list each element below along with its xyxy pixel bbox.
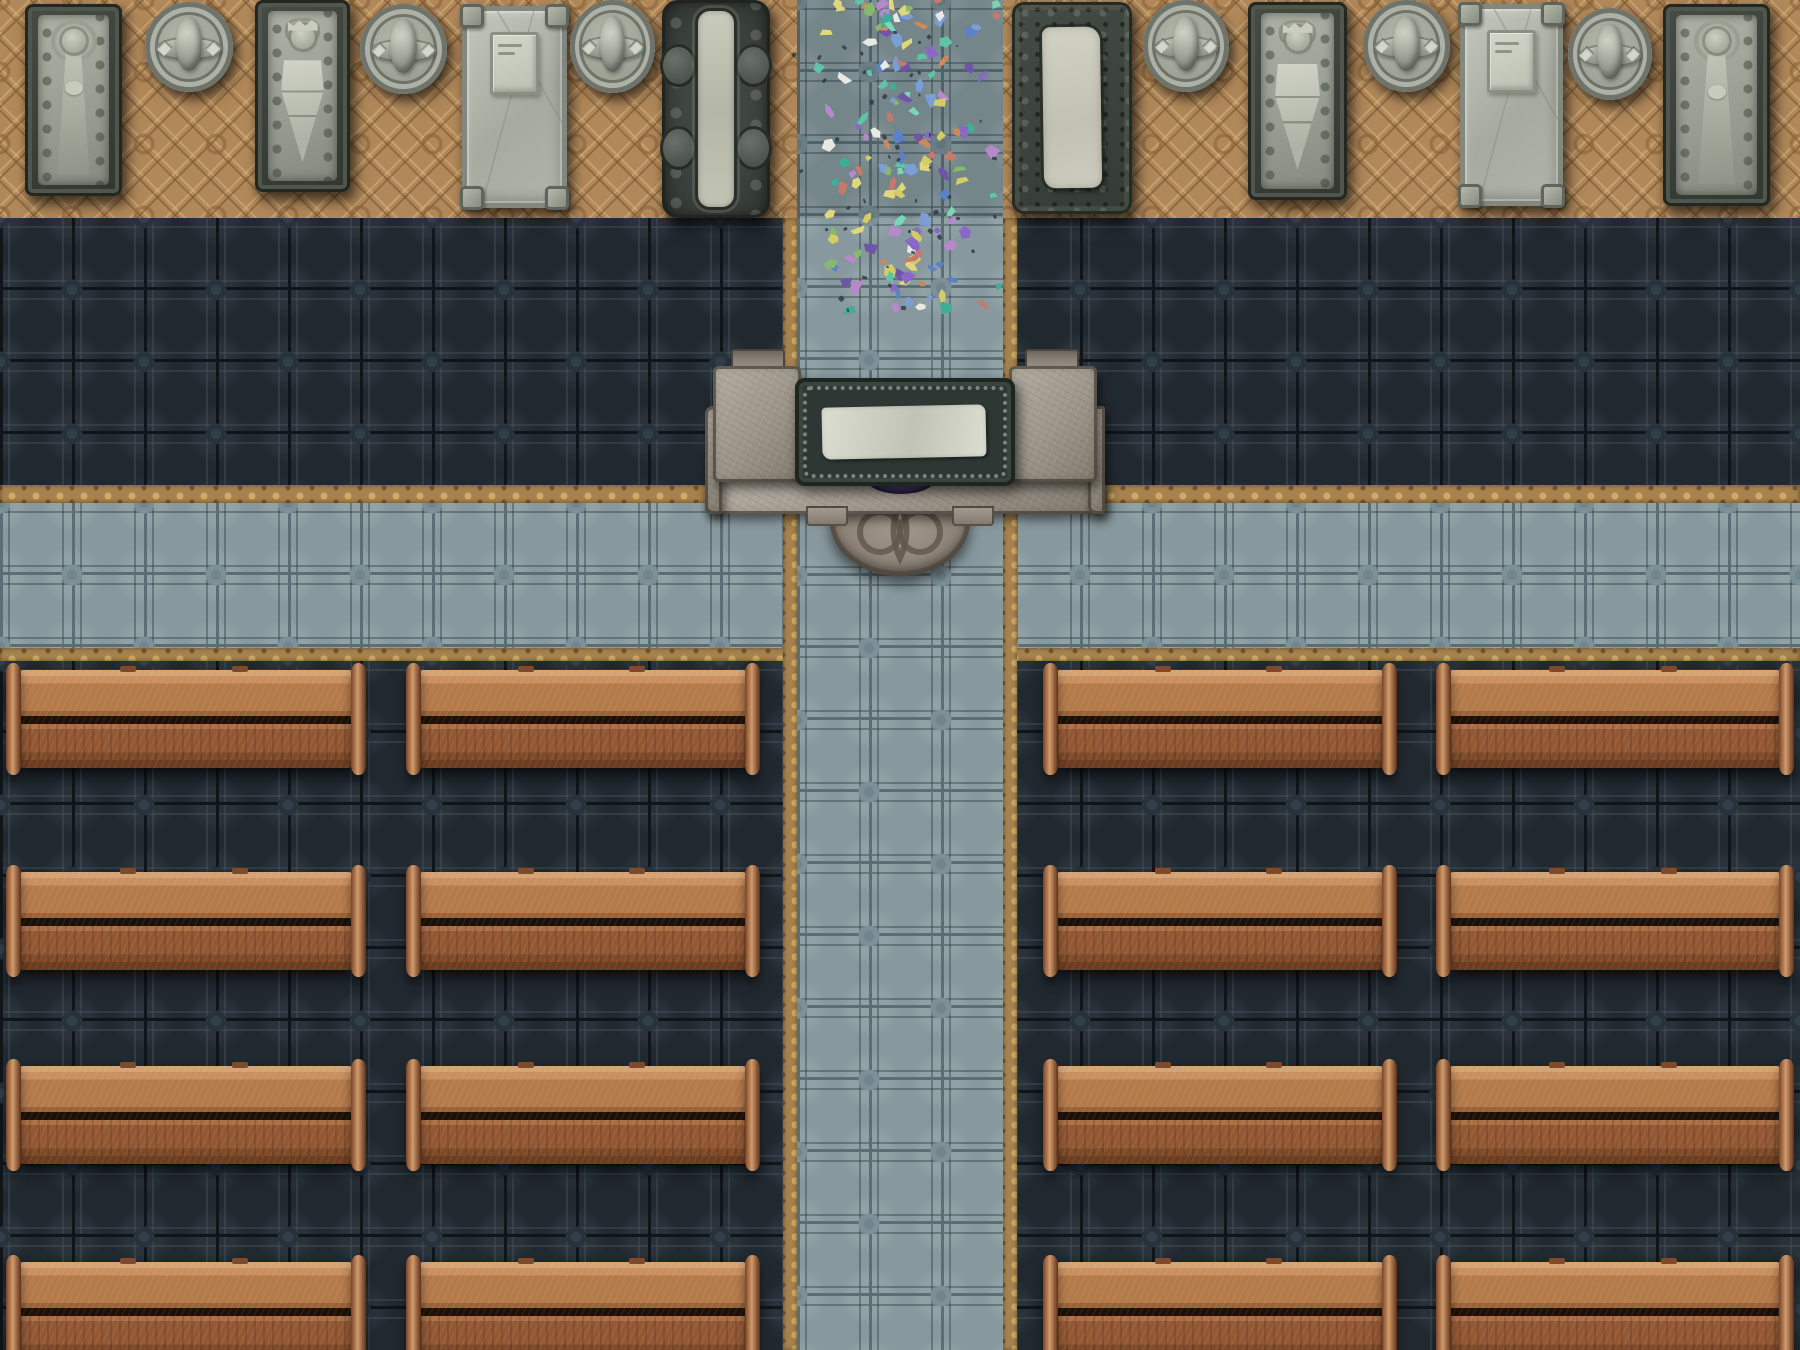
pew-back-bracket — [120, 868, 136, 874]
church-battlemap — [0, 0, 1800, 1350]
pew-row1-col4[interactable] — [1450, 670, 1780, 768]
pew-row4-col1[interactable] — [20, 1262, 352, 1350]
pew-row3-col3[interactable] — [1057, 1066, 1383, 1164]
pew-end-cap-left — [1436, 865, 1451, 977]
pew-end-cap-right — [1779, 663, 1794, 775]
pew-end-cap-right — [1779, 1255, 1794, 1350]
pew-end-cap-left — [406, 663, 421, 775]
pew-end-cap-right — [351, 1059, 366, 1171]
pew-row2-col2[interactable] — [420, 872, 746, 970]
pew-back-bracket — [1266, 1258, 1282, 1264]
pew-end-cap-left — [1043, 1059, 1058, 1171]
pew-end-cap-right — [351, 1255, 366, 1350]
pew-back-bracket — [629, 1062, 645, 1068]
pew-back-bracket — [1661, 868, 1677, 874]
pew-row2-col3[interactable] — [1057, 872, 1383, 970]
pew-back-bracket — [232, 868, 248, 874]
pew-layer — [0, 0, 1800, 1350]
pew-back-bracket — [629, 868, 645, 874]
pew-end-cap-right — [351, 663, 366, 775]
pew-row3-col1[interactable] — [20, 1066, 352, 1164]
pew-row2-col4[interactable] — [1450, 872, 1780, 970]
pew-end-cap-right — [745, 1059, 760, 1171]
pew-back-bracket — [1266, 1062, 1282, 1068]
pew-row1-col3[interactable] — [1057, 670, 1383, 768]
pew-end-cap-right — [1779, 1059, 1794, 1171]
pew-back-bracket — [629, 666, 645, 672]
pew-back-bracket — [120, 1258, 136, 1264]
pew-back-bracket — [1549, 1062, 1565, 1068]
pew-back-bracket — [120, 1062, 136, 1068]
pew-back-bracket — [1661, 666, 1677, 672]
pew-back-bracket — [518, 666, 534, 672]
pew-end-cap-right — [1382, 1255, 1397, 1350]
pew-row4-col4[interactable] — [1450, 1262, 1780, 1350]
pew-back-bracket — [1549, 666, 1565, 672]
pew-back-bracket — [518, 868, 534, 874]
pew-end-cap-left — [1043, 865, 1058, 977]
pew-end-cap-left — [406, 1059, 421, 1171]
pew-end-cap-left — [1436, 1255, 1451, 1350]
pew-row3-col2[interactable] — [420, 1066, 746, 1164]
pew-back-bracket — [1266, 666, 1282, 672]
pew-end-cap-left — [1436, 1059, 1451, 1171]
pew-row1-col1[interactable] — [20, 670, 352, 768]
pew-end-cap-right — [351, 865, 366, 977]
pew-back-bracket — [1661, 1062, 1677, 1068]
pew-back-bracket — [518, 1258, 534, 1264]
pew-back-bracket — [1549, 1258, 1565, 1264]
pew-back-bracket — [1155, 1258, 1171, 1264]
pew-back-bracket — [232, 666, 248, 672]
pew-row2-col1[interactable] — [20, 872, 352, 970]
pew-row4-col2[interactable] — [420, 1262, 746, 1350]
pew-end-cap-left — [1043, 1255, 1058, 1350]
pew-end-cap-right — [1779, 865, 1794, 977]
pew-end-cap-right — [745, 1255, 760, 1350]
pew-end-cap-left — [406, 865, 421, 977]
pew-back-bracket — [518, 1062, 534, 1068]
pew-end-cap-left — [6, 663, 21, 775]
pew-end-cap-right — [1382, 1059, 1397, 1171]
pew-end-cap-right — [1382, 663, 1397, 775]
pew-end-cap-left — [6, 865, 21, 977]
pew-back-bracket — [232, 1062, 248, 1068]
pew-back-bracket — [1155, 1062, 1171, 1068]
pew-end-cap-right — [745, 663, 760, 775]
pew-end-cap-left — [1436, 663, 1451, 775]
pew-end-cap-left — [6, 1059, 21, 1171]
pew-back-bracket — [1155, 666, 1171, 672]
pew-end-cap-left — [6, 1255, 21, 1350]
pew-back-bracket — [1155, 868, 1171, 874]
pew-row4-col3[interactable] — [1057, 1262, 1383, 1350]
pew-back-bracket — [1266, 868, 1282, 874]
pew-back-bracket — [629, 1258, 645, 1264]
pew-back-bracket — [1661, 1258, 1677, 1264]
pew-row3-col4[interactable] — [1450, 1066, 1780, 1164]
pew-back-bracket — [232, 1258, 248, 1264]
pew-end-cap-right — [745, 865, 760, 977]
pew-back-bracket — [120, 666, 136, 672]
pew-row1-col2[interactable] — [420, 670, 746, 768]
pew-end-cap-left — [406, 1255, 421, 1350]
pew-back-bracket — [1549, 868, 1565, 874]
pew-end-cap-right — [1382, 865, 1397, 977]
pew-end-cap-left — [1043, 663, 1058, 775]
